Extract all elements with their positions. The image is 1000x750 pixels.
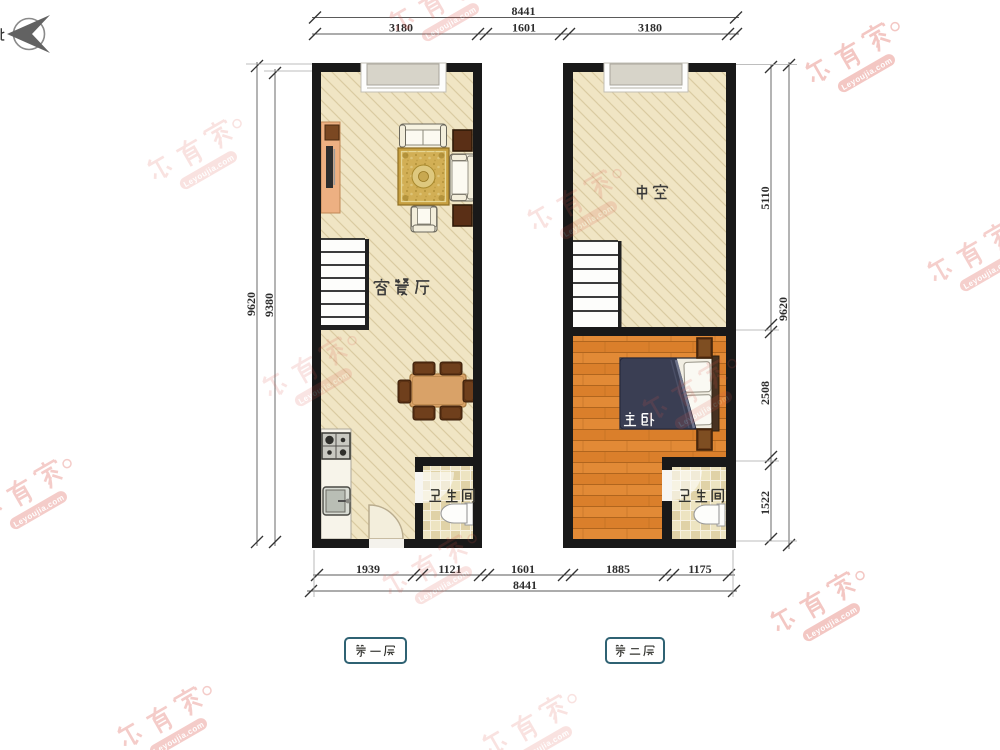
svg-text:9620: 9620: [776, 297, 790, 321]
svg-text:8441: 8441: [512, 4, 536, 18]
svg-text:1175: 1175: [688, 562, 711, 576]
svg-text:5110: 5110: [758, 186, 772, 209]
svg-text:3180: 3180: [638, 21, 662, 35]
svg-text:1601: 1601: [511, 562, 535, 576]
svg-text:8441: 8441: [513, 578, 537, 592]
svg-text:2508: 2508: [758, 381, 772, 405]
svg-text:1885: 1885: [606, 562, 630, 576]
svg-text:1939: 1939: [356, 562, 380, 576]
svg-text:9380: 9380: [262, 293, 276, 317]
svg-text:1601: 1601: [512, 21, 536, 35]
svg-text:9620: 9620: [244, 292, 258, 316]
svg-text:1522: 1522: [758, 491, 772, 515]
